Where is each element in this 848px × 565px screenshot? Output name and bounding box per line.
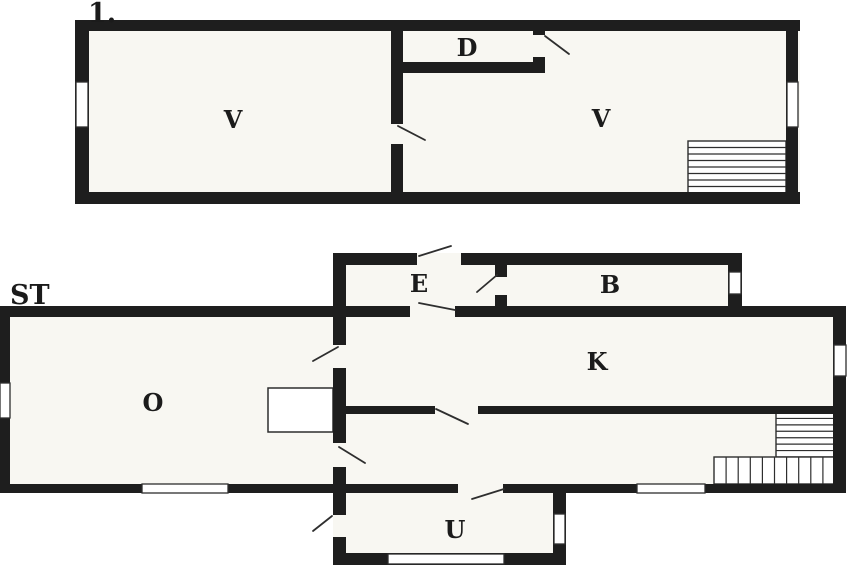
wall: [75, 192, 800, 204]
staircase: [714, 457, 835, 484]
wall: [478, 406, 846, 414]
room-label-K: K: [587, 347, 609, 376]
wall: [495, 253, 507, 277]
window: [637, 484, 705, 493]
wall: [495, 295, 507, 312]
room-label-V: V: [223, 105, 243, 134]
room-label-O: O: [143, 388, 164, 417]
wall: [75, 20, 800, 31]
room-label-B: B: [600, 270, 620, 299]
floor-plan-drawing: 1.VDVSTOEBKU: [0, 0, 848, 565]
room-label-E: E: [410, 269, 428, 298]
wall: [346, 406, 435, 414]
window: [76, 82, 88, 127]
wall: [533, 20, 545, 35]
floor-label-1: 1.: [88, 0, 116, 29]
fireplace-block: [268, 388, 333, 432]
room-label-D: D: [457, 33, 478, 62]
wall: [333, 253, 346, 345]
window: [834, 345, 846, 376]
upper-floor: 1.VDV: [75, 0, 800, 204]
window: [0, 383, 10, 418]
wall: [333, 368, 346, 443]
wall: [0, 484, 458, 493]
window: [388, 554, 504, 564]
wall: [533, 57, 545, 73]
window: [729, 272, 741, 294]
window: [142, 484, 228, 493]
wall: [0, 306, 346, 317]
room-label-U: U: [445, 515, 466, 544]
floor-label-ST: ST: [10, 280, 50, 311]
wall: [391, 62, 545, 73]
wall: [833, 306, 846, 493]
floor-plan-page: 1.VDVSTOEBKU: [0, 0, 848, 565]
wall: [346, 306, 410, 317]
wall: [455, 306, 846, 317]
window: [787, 82, 798, 127]
staircase: [688, 141, 786, 193]
window: [554, 514, 565, 544]
wall: [391, 144, 403, 204]
room-label-V: V: [591, 104, 611, 133]
staircase: [776, 412, 835, 457]
